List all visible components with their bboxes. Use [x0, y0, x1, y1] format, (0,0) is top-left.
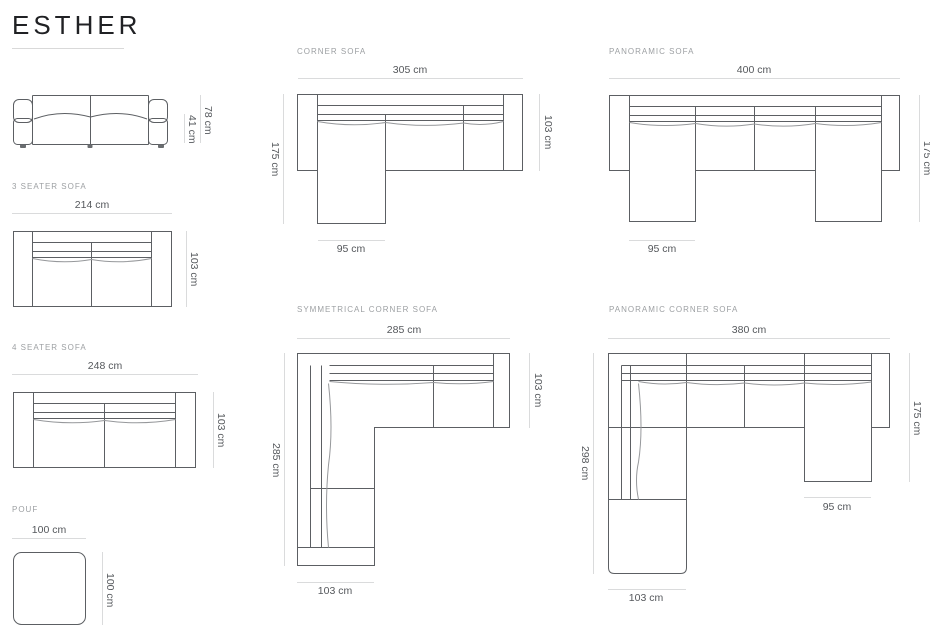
- dimension-right-depth: 175 cm: [909, 380, 923, 456]
- section-divider-lines: [609, 354, 687, 500]
- dimension-width: 380 cm: [709, 324, 789, 336]
- dimension-line: [804, 497, 871, 498]
- page-title: ESTHER: [12, 10, 141, 41]
- section-label-4-seater: 4 SEATER SOFA: [12, 343, 87, 352]
- sofa-outline: [298, 95, 523, 224]
- dimension-width: 305 cm: [370, 64, 450, 76]
- dimension-line: [297, 582, 374, 583]
- corner-sofa-top-view-diagram: [297, 94, 524, 225]
- dimension-line: [12, 374, 198, 375]
- dimension-line: [593, 353, 594, 574]
- dimension-line: [629, 240, 695, 241]
- cushion-curve: [318, 122, 504, 126]
- 3-seater-top-view-diagram: [13, 231, 173, 308]
- dimension-depth: 103 cm: [186, 234, 200, 304]
- backrest-lines: [34, 404, 176, 468]
- dimension-width: 285 cm: [364, 324, 444, 336]
- dimension-chaise-width: 95 cm: [311, 243, 391, 255]
- backrest-lines: [630, 107, 882, 122]
- cushion-curve-vertical: [637, 384, 642, 500]
- section-label-panoramic-sofa: PANORAMIC SOFA: [609, 47, 694, 56]
- dimension-arm-width: 103 cm: [606, 592, 686, 604]
- sofa-outline: [609, 354, 890, 574]
- sofa-front-elevation-diagram: [10, 88, 175, 153]
- section-label-symmetrical-corner: SYMMETRICAL CORNER SOFA: [297, 305, 438, 314]
- dimension-total-height: 78 cm: [200, 95, 214, 145]
- section-label-3-seater: 3 SEATER SOFA: [12, 182, 87, 191]
- dimension-depth: 100 cm: [102, 555, 116, 625]
- cushion-curve-vertical: [327, 384, 332, 548]
- 4-seater-top-view-diagram: [13, 392, 198, 469]
- dimension-line: [284, 353, 285, 566]
- dimension-depth-total: 298 cm: [577, 423, 591, 503]
- dimension-width: 400 cm: [714, 64, 794, 76]
- dimension-depth-total: 175 cm: [919, 120, 930, 196]
- panoramic-sofa-top-view-diagram: [609, 95, 900, 223]
- cushion-curve: [639, 382, 872, 386]
- backrest-lines: [311, 366, 494, 548]
- dimension-depth-total: 175 cm: [267, 119, 281, 199]
- dimension-arm-width: 103 cm: [295, 585, 375, 597]
- seat-divider-lines: [386, 106, 464, 224]
- dimension-depth: 103 cm: [213, 395, 227, 465]
- pouf-outline: [14, 553, 86, 625]
- backrest-lines: [622, 366, 872, 500]
- dimension-line: [608, 589, 686, 590]
- sofa-foot: [20, 145, 26, 149]
- pouf-top-view-diagram: [13, 552, 87, 626]
- backrest-lines: [318, 106, 504, 121]
- symmetrical-corner-top-view-diagram: [297, 353, 511, 567]
- cushion-curve: [330, 382, 494, 385]
- dimension-width: 100 cm: [9, 524, 89, 536]
- dimension-line: [297, 338, 510, 339]
- dimension-chaise-width: 95 cm: [797, 501, 877, 513]
- section-label-panoramic-corner: PANORAMIC CORNER SOFA: [609, 305, 738, 314]
- dimension-line: [318, 240, 385, 241]
- dimension-line: [298, 78, 523, 79]
- title-underline: [12, 48, 124, 49]
- dimension-line: [283, 94, 284, 224]
- seat-divider-lines: [745, 354, 872, 482]
- backrest-lines: [33, 243, 152, 307]
- dimension-sheet: ESTHER 78 cm 41 cm 3 SEATER SOFA 214 cm …: [0, 0, 930, 630]
- dimension-line: [608, 338, 890, 339]
- dimension-depth: 103 cm: [530, 355, 544, 425]
- dimension-depth: 103 cm: [540, 97, 554, 167]
- sofa-foot: [158, 145, 164, 149]
- dimension-depth-total: 285 cm: [268, 420, 282, 500]
- dimension-width: 214 cm: [52, 199, 132, 211]
- section-label-pouf: POUF: [12, 505, 38, 514]
- dimension-seat-height: 41 cm: [184, 112, 198, 146]
- dimension-width: 248 cm: [65, 360, 145, 372]
- panoramic-corner-top-view-diagram: [608, 353, 890, 574]
- dimension-chaise-width: 95 cm: [622, 243, 702, 255]
- dimension-line: [609, 78, 900, 79]
- cushion-curve: [630, 123, 882, 127]
- section-label-corner-sofa: CORNER SOFA: [297, 47, 366, 56]
- dimension-line: [12, 213, 172, 214]
- dimension-line: [12, 538, 86, 539]
- sofa-foot: [88, 145, 93, 149]
- sofa-outline: [33, 96, 149, 145]
